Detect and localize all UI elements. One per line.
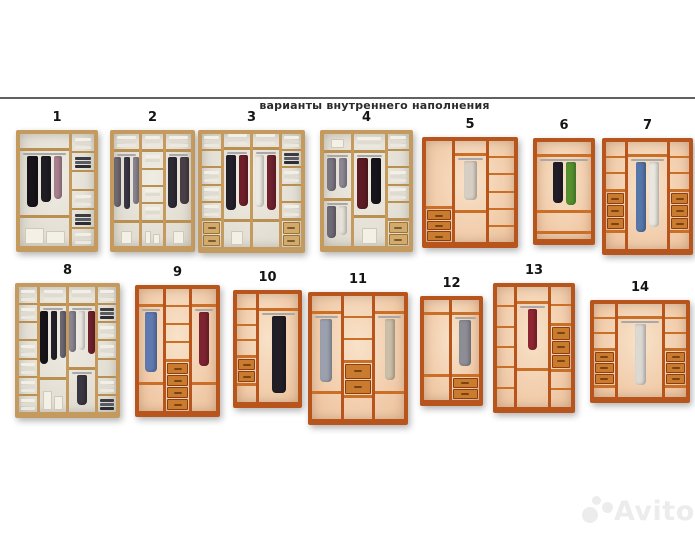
shelf-compartment: [388, 168, 409, 185]
shelf-compartment: [202, 134, 221, 151]
shelf-compartment: [497, 368, 514, 388]
empty-section: [537, 234, 591, 239]
shelf-section: [354, 134, 385, 153]
drawer-handle: [354, 386, 362, 388]
shelf-compartment: [237, 386, 256, 402]
garment: [133, 157, 139, 204]
shelf-compartment: [670, 174, 689, 188]
shelf-compartment: [98, 287, 116, 305]
drawer-stack: [606, 192, 625, 234]
drawer: [389, 234, 408, 245]
shelf-compartment: [259, 294, 298, 308]
drawer-unit: [237, 358, 256, 383]
hanging-rod-section: [40, 306, 66, 380]
shelf-section: [388, 134, 409, 221]
wardrobe-column: [344, 296, 373, 419]
hanging-garments: [324, 205, 351, 246]
shelf-compartment: [40, 287, 66, 303]
drawer: [666, 363, 685, 373]
shelf-compartment: [114, 134, 139, 149]
folded-clothes-stack: [284, 171, 299, 182]
drawer-handle: [600, 356, 608, 358]
shelf-compartment: [142, 134, 162, 149]
folded-clothes-stack: [75, 138, 91, 149]
empty-section: [455, 213, 486, 242]
wardrobe-column: [551, 287, 571, 407]
garment: [371, 158, 381, 204]
shelf-section: [192, 289, 216, 307]
shelf-compartments: [606, 142, 625, 189]
shelf-section: [551, 372, 571, 408]
hanging-rod-section: [324, 153, 351, 201]
wardrobe-body: [420, 296, 483, 406]
folded-clothes-stack: [390, 171, 406, 182]
drawer-stack: [166, 362, 190, 411]
folded-clothes-stack: [100, 326, 114, 337]
shelf-compartment: [72, 191, 94, 210]
wardrobe-column: [139, 289, 163, 411]
wardrobe-body: [16, 130, 98, 252]
shelf-compartment: [98, 360, 116, 378]
drawer-unit: [606, 192, 625, 231]
folded-clothes-stack: [145, 136, 161, 147]
shelf-compartment: [670, 233, 689, 249]
wardrobe-figure: 6: [533, 118, 595, 245]
shelf-compartment: [618, 304, 662, 316]
wardrobe-column: [452, 300, 479, 400]
drawer-handle: [243, 376, 251, 378]
shelf-section: [670, 142, 689, 192]
shelf-section: [594, 304, 615, 351]
avito-watermark: Avito: [576, 490, 694, 538]
drawer-stack: [388, 221, 409, 246]
shelf-compartment: [594, 319, 615, 334]
shelf-compartment: [98, 378, 116, 396]
shelf-compartment: [142, 187, 162, 204]
wardrobe-number: 11: [308, 272, 408, 287]
shelf-compartment: [192, 289, 216, 304]
shelf-compartment: [551, 287, 571, 306]
garment: [51, 311, 58, 360]
empty-section: [424, 377, 449, 401]
wardrobe-column: [142, 134, 162, 246]
hanging-rod-section: [537, 157, 591, 214]
wardrobe-columns: [424, 300, 479, 400]
drawer: [427, 221, 451, 231]
shelf-compartment: [202, 203, 221, 218]
empty-section: [139, 385, 163, 411]
drawer: [238, 359, 255, 370]
garment: [69, 311, 76, 352]
wardrobe-body: [533, 138, 595, 245]
drawer-unit: [282, 221, 301, 247]
hanging-garments: [312, 318, 341, 391]
shelf-section: [166, 289, 190, 362]
drawer-handle: [676, 198, 684, 200]
shelf-compartment: [237, 341, 256, 355]
shelf-compartment: [72, 153, 94, 172]
hanging-rod-section: [312, 314, 341, 394]
drawer: [167, 363, 189, 374]
wardrobe-column: [497, 287, 514, 407]
wardrobe-column: [324, 134, 351, 246]
wardrobe-columns: [426, 141, 514, 242]
shelf-compartments: [139, 289, 163, 304]
garment: [327, 158, 336, 191]
garment: [79, 311, 85, 350]
hanging-garments: [224, 154, 250, 219]
shelf-compartment: [537, 142, 591, 154]
shelf-compartment: [282, 151, 301, 168]
wardrobe-column: [72, 134, 94, 246]
wardrobe-columns: [324, 134, 409, 246]
storage-box: [231, 231, 243, 245]
wardrobe-figure: 11: [308, 272, 408, 425]
folded-clothes-stack: [21, 399, 35, 410]
drawer-handle: [611, 198, 619, 200]
drawer-stack: [237, 358, 256, 386]
shelf-compartment: [166, 289, 190, 307]
shelf-section: [517, 287, 548, 304]
shelf-section: [424, 300, 449, 315]
hanging-rod-section: [628, 157, 667, 249]
wardrobe-column: [670, 142, 689, 249]
hanging-garments: [354, 157, 385, 215]
shelf-compartments: [594, 304, 615, 348]
garment: [226, 155, 236, 210]
shelf-section: [497, 287, 514, 407]
folded-clothes-stack: [284, 136, 299, 147]
wardrobe-body: [320, 130, 413, 252]
wardrobe-number: 2: [110, 110, 195, 125]
shelf-compartment: [375, 296, 404, 311]
shelf-section: [98, 287, 116, 412]
hanging-rod-section: [192, 307, 216, 385]
wardrobe-body: [233, 290, 302, 408]
shelf-compartment: [344, 340, 373, 360]
shelf-compartments: [537, 142, 591, 154]
drawer-stack: [670, 192, 689, 234]
shelf-compartments: [628, 142, 667, 154]
empty-section: [517, 371, 548, 407]
shelf-compartment: [388, 151, 409, 168]
shelf-compartment: [19, 341, 37, 359]
shelf-compartment: [424, 300, 449, 312]
wardrobe-column: [253, 134, 279, 247]
shelf-compartment: [19, 287, 37, 305]
storage-boxes: [324, 134, 351, 153]
wardrobe-number: 14: [590, 280, 690, 295]
garment: [88, 311, 94, 354]
shelf-compartment: [19, 360, 37, 378]
shelf-section: [166, 134, 191, 152]
folded-clothes-stack: [145, 207, 161, 218]
storage-box: [43, 391, 52, 410]
shelf-compartments: [114, 134, 139, 149]
drawer: [552, 327, 570, 340]
wardrobe-column: [114, 134, 139, 246]
shelf-compartment: [489, 210, 514, 227]
drawer: [607, 193, 624, 205]
garment: [27, 156, 38, 207]
drawer-handle: [557, 346, 565, 348]
drawer: [203, 235, 220, 246]
drawer: [595, 352, 614, 362]
hanging-rod-section: [354, 153, 385, 218]
shelf-compartment: [489, 227, 514, 242]
storage-box: [331, 139, 344, 147]
wardrobe-body: [15, 283, 120, 418]
garment: [649, 162, 659, 227]
wardrobe-columns: [594, 304, 686, 397]
drawer-handle: [676, 223, 684, 225]
drawer: [167, 399, 189, 410]
wardrobe-figure: 10: [233, 270, 302, 408]
shelf-compartments: [375, 296, 404, 311]
garment: [255, 155, 264, 207]
folded-clothes-stack: [75, 195, 91, 206]
drawer: [607, 218, 624, 230]
shelf-section: [237, 386, 256, 402]
shelf-compartments: [142, 134, 162, 149]
shelf-section: [19, 287, 37, 412]
wardrobe-column: [237, 294, 256, 402]
shelf-compartments: [20, 134, 69, 148]
wardrobe-column: [20, 134, 69, 246]
shelf-compartment: [98, 396, 116, 412]
folded-clothes-stack: [100, 345, 114, 356]
shelf-compartment: [606, 142, 625, 158]
drawer-handle: [394, 227, 402, 229]
wardrobe-column: [628, 142, 667, 249]
garment: [168, 157, 177, 208]
drawer-handle: [557, 332, 565, 334]
shelf-section: [253, 134, 279, 150]
boxes-row: [142, 223, 162, 246]
shelf-compartments: [670, 233, 689, 249]
folded-clothes-stack: [21, 290, 35, 301]
hanging-rod-section: [259, 311, 298, 403]
shelf-compartment: [665, 334, 686, 347]
drawer-unit: [388, 221, 409, 246]
shelf-compartments: [72, 134, 94, 246]
shelf-compartment: [72, 229, 94, 246]
wardrobe-number: 7: [602, 118, 693, 133]
shelf-compartment: [344, 296, 373, 318]
wardrobe-columns: [139, 289, 216, 411]
shelf-compartments: [606, 233, 625, 249]
storage-boxes: [354, 218, 385, 246]
drawer-handle: [461, 393, 469, 395]
hanging-rod-section: [253, 150, 279, 222]
drawer-handle: [672, 367, 680, 369]
shelf-compartment: [202, 186, 221, 203]
storage-box: [145, 231, 152, 244]
shelf-compartment: [98, 341, 116, 359]
folded-clothes-stack: [228, 134, 247, 145]
garment: [459, 320, 471, 365]
drawer-unit: [344, 363, 373, 396]
drawer-stack: [202, 221, 221, 247]
shelf-compartments: [40, 287, 66, 303]
storage-box: [362, 228, 377, 244]
hanging-garments: [253, 154, 279, 219]
shelf-section: [259, 294, 298, 311]
shelf-compartment: [72, 134, 94, 153]
empty-section: [426, 141, 452, 209]
wardrobe-figure: 7: [602, 118, 693, 255]
shelf-compartment: [665, 304, 686, 319]
shelf-compartments: [166, 134, 191, 149]
wardrobe-columns: [20, 134, 94, 246]
shelf-section: [142, 134, 162, 152]
wardrobe-number: 12: [420, 276, 483, 291]
shelf-compartment: [388, 134, 409, 151]
wardrobe-columns: [19, 287, 116, 412]
garment: [553, 162, 563, 203]
wardrobe-column: [618, 304, 662, 397]
boxes-row: [324, 134, 351, 150]
drawer-handle: [354, 370, 362, 372]
shelf-compartment: [354, 134, 385, 150]
drawer-handle: [174, 380, 182, 382]
wardrobe-figure: 3: [198, 110, 305, 253]
folded-clothes-stack: [100, 308, 114, 319]
shelf-section: [202, 134, 221, 221]
shelf-compartments: [253, 134, 279, 147]
garment: [60, 311, 66, 358]
hanging-garments: [455, 160, 486, 210]
shelf-compartments: [142, 152, 162, 219]
wardrobe-body: [422, 137, 518, 248]
hanging-rod-section: [224, 150, 250, 222]
hanging-garments: [618, 323, 662, 397]
drawer-stack: [426, 209, 452, 242]
shelf-compartment: [497, 389, 514, 407]
storage-boxes: [20, 218, 69, 246]
wardrobe-column: [375, 296, 404, 419]
shelf-compartment: [551, 306, 571, 323]
folded-clothes-stack: [390, 136, 406, 147]
drawer-handle: [676, 210, 684, 212]
storage-boxes: [40, 380, 66, 412]
folded-clothes-stack: [75, 233, 91, 244]
shelf-compartment: [98, 323, 116, 341]
drawer: [552, 341, 570, 354]
wardrobe-body: [198, 130, 305, 253]
storage-boxes: [142, 223, 162, 246]
folded-clothes-stack: [390, 188, 406, 199]
drawer: [671, 218, 688, 230]
shelf-compartment: [19, 323, 37, 341]
shelf-compartments: [424, 300, 449, 312]
folded-clothes-stack: [357, 137, 380, 148]
wardrobe-number: 6: [533, 118, 595, 133]
shelf-compartments: [455, 141, 486, 153]
empty-section: [665, 388, 686, 397]
boxes-row: [40, 380, 66, 412]
wardrobe-column: [354, 134, 385, 246]
drawer-handle: [208, 240, 216, 242]
wardrobe-column: [224, 134, 250, 247]
wardrobe-column: [388, 134, 409, 246]
drawer-unit: [665, 351, 686, 386]
shelf-compartment: [594, 304, 615, 319]
shelf-compartment: [606, 233, 625, 249]
garment: [385, 319, 395, 380]
folded-clothes-stack: [100, 381, 114, 392]
shelf-compartment: [606, 174, 625, 188]
drawer-handle: [174, 368, 182, 370]
garment: [199, 312, 209, 366]
drawer-handle: [672, 378, 680, 380]
shelf-compartment: [142, 170, 162, 187]
shelf-compartment: [166, 343, 190, 359]
wardrobe-column: [594, 304, 615, 397]
wardrobe-column: [166, 289, 190, 411]
folded-clothes-stack: [284, 205, 299, 216]
drawer-handle: [243, 364, 251, 366]
storage-box: [153, 234, 160, 244]
wardrobe-figure: 5: [422, 117, 518, 248]
garment: [267, 155, 276, 209]
drawer-unit: [594, 351, 615, 386]
hanging-garments: [324, 157, 351, 198]
wardrobe-figure: 9: [135, 265, 220, 417]
wardrobe-figure: 12: [420, 276, 483, 406]
garment: [180, 157, 189, 204]
wardrobe-body: [308, 292, 408, 425]
wardrobe-columns: [312, 296, 404, 419]
shelf-section: [344, 296, 373, 363]
wardrobe-number: 4: [320, 110, 413, 125]
wardrobe-figure: 4: [320, 110, 413, 252]
drawer-handle: [435, 215, 443, 217]
shelf-compartment: [670, 142, 689, 158]
wardrobe-body: [602, 138, 693, 255]
storage-boxes: [224, 222, 250, 247]
boxes-row: [224, 222, 250, 247]
shelf-compartment: [72, 172, 94, 191]
garment: [327, 206, 336, 238]
wardrobe-column: [69, 287, 95, 412]
shelf-compartment: [202, 151, 221, 168]
hanging-rod-section: [452, 315, 479, 376]
shelf-compartments: [551, 287, 571, 323]
shelf-compartment: [282, 186, 301, 203]
wardrobe-number: 9: [135, 265, 220, 280]
wardrobe-body: [590, 300, 690, 403]
garment: [124, 157, 131, 209]
storage-box: [54, 396, 63, 410]
wardrobe-column: [665, 304, 686, 397]
folded-clothes-stack: [21, 308, 35, 319]
garment: [566, 162, 576, 205]
drawer-handle: [435, 236, 443, 238]
drawer-stack: [344, 363, 373, 399]
garment: [635, 324, 646, 385]
wardrobe-column: [455, 141, 486, 242]
boxes-row: [20, 218, 69, 246]
shelf-compartment: [166, 307, 190, 325]
drawer-handle: [394, 239, 402, 241]
shelf-compartment: [20, 134, 69, 148]
drawer: [283, 222, 300, 233]
drawer-stack: [452, 377, 479, 401]
empty-section: [253, 222, 279, 247]
hanging-rod-section: [324, 201, 351, 246]
shelf-compartment: [237, 294, 256, 310]
